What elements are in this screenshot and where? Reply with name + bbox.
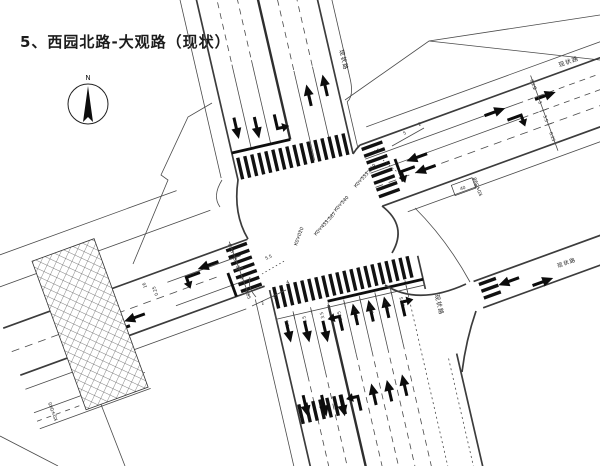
chainage-label: K0+020 bbox=[293, 226, 305, 246]
dim-label: 3.5 bbox=[541, 114, 549, 123]
south-arm-markings bbox=[254, 252, 496, 466]
south-road-label: 现状路 bbox=[433, 294, 446, 316]
compass-n-label: N bbox=[85, 74, 90, 82]
dim-label: 3.25 bbox=[352, 307, 360, 318]
dim-label: 2 bbox=[260, 300, 265, 307]
road-a-north-south: 现状路 bbox=[168, 0, 496, 466]
dim-label: 3 bbox=[238, 276, 245, 281]
chainage-label: K0+340 bbox=[333, 195, 350, 213]
chainage-label: K0+596 bbox=[472, 176, 484, 196]
drawing-canvas: 5、西园北路-大观路（现状） N bbox=[0, 0, 600, 466]
dim-label: 0.25 bbox=[547, 131, 556, 142]
north-arm-arrows bbox=[224, 73, 338, 144]
dim-label: 3 bbox=[536, 100, 543, 105]
dim-label: 3.5 bbox=[319, 311, 326, 319]
dim-label: 3.5 bbox=[301, 315, 308, 323]
dim-label: 0.25 bbox=[151, 285, 160, 296]
dim-label: 5 bbox=[402, 130, 407, 137]
dim-label: 3.25 bbox=[383, 299, 391, 310]
intersection-plan: 5、西园北路-大观路（现状） N bbox=[0, 0, 600, 466]
dim-label: 3.5 bbox=[284, 319, 291, 327]
dim-label: 3 bbox=[531, 86, 538, 91]
corner-curves bbox=[216, 145, 476, 372]
west-arm-markings bbox=[0, 173, 284, 428]
dim-label: 40 bbox=[459, 185, 466, 193]
dim-label: 3.25 bbox=[399, 296, 407, 307]
crosswalk-north bbox=[236, 133, 349, 179]
dim-label: 4 bbox=[285, 279, 290, 286]
crosswalk-south bbox=[272, 256, 414, 309]
north-road-label: 现状路 bbox=[337, 49, 350, 71]
center-chainages: K0+335.649 K0+340 K0+433.367 bbox=[313, 163, 378, 237]
dim-label: 4.5 bbox=[372, 147, 381, 155]
chainage-label: K0+433.367 bbox=[313, 211, 338, 237]
page-title: 5、西园北路-大观路（现状） bbox=[20, 33, 231, 51]
north-compass-icon: N bbox=[68, 74, 108, 124]
crosswalk-minor bbox=[478, 277, 501, 300]
hatched-construction-zone bbox=[32, 239, 148, 410]
dim-label: 5.5 bbox=[264, 253, 273, 261]
minor-road-label: 现状路 bbox=[556, 255, 577, 269]
dim-label: 16 bbox=[141, 281, 149, 288]
dim-label: 3.25 bbox=[367, 303, 375, 314]
minor-road-arrows bbox=[497, 262, 555, 301]
dim-label: 3.25 bbox=[336, 310, 344, 321]
